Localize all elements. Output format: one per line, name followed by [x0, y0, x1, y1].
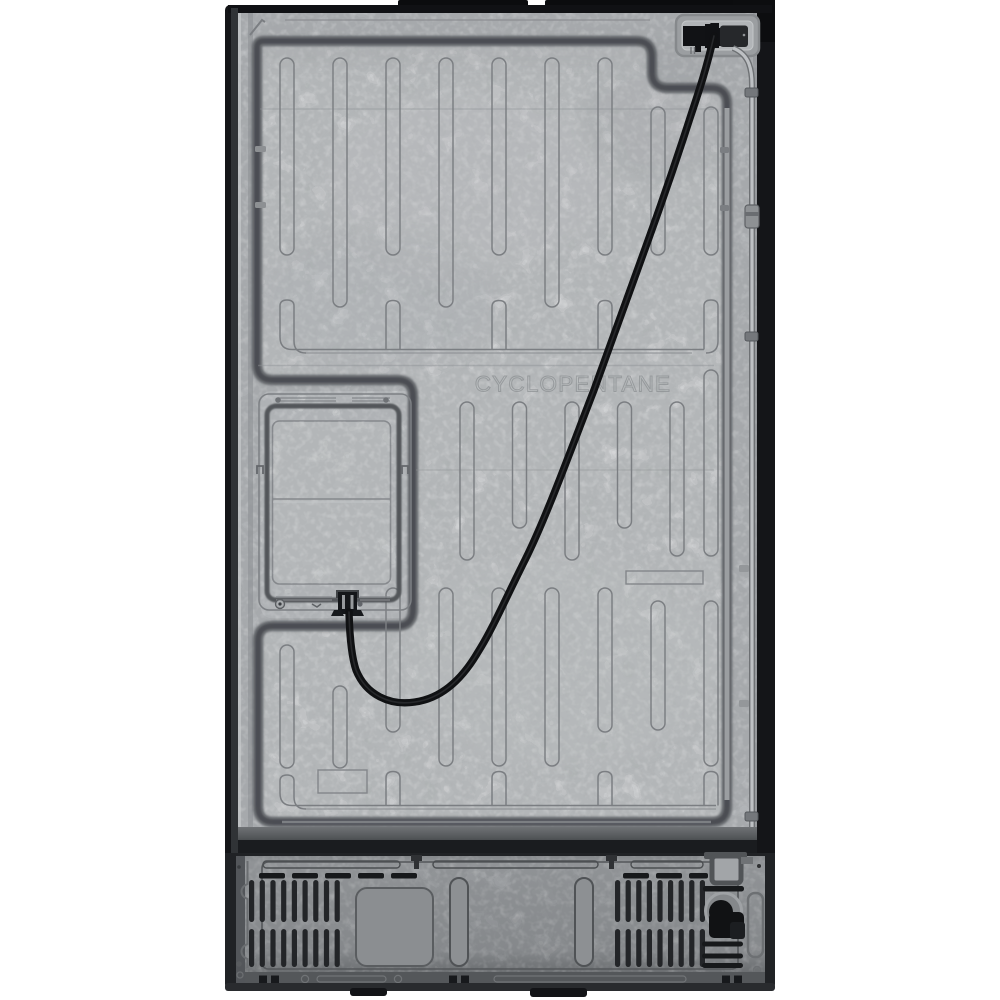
- svg-text:CYCLOPENTANE: CYCLOPENTANE: [475, 372, 672, 397]
